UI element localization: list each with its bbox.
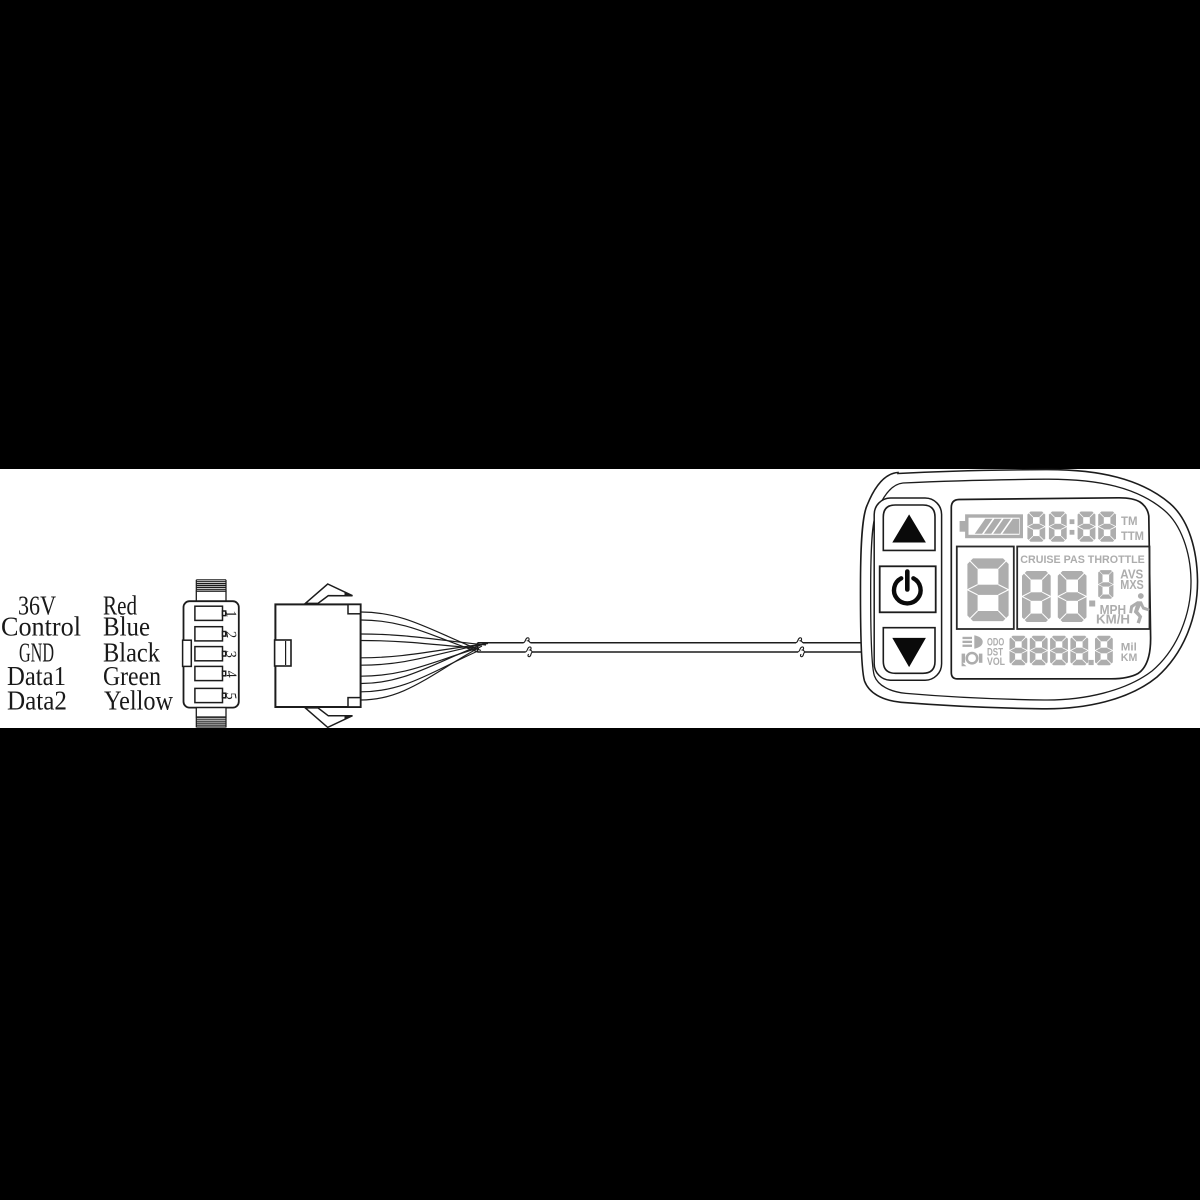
svg-text:CRUISE PAS THROTTLE: CRUISE PAS THROTTLE	[1020, 554, 1145, 566]
svg-text:TTM: TTM	[1121, 531, 1144, 543]
svg-text:KM: KM	[1121, 652, 1138, 664]
svg-text:Data2: Data2	[7, 686, 67, 716]
svg-text:KM/H: KM/H	[1096, 612, 1130, 627]
svg-text:Yellow: Yellow	[104, 686, 173, 716]
svg-text:MXS: MXS	[1120, 578, 1144, 592]
svg-text:TM: TM	[1121, 516, 1138, 528]
svg-text:VOL: VOL	[987, 656, 1005, 668]
